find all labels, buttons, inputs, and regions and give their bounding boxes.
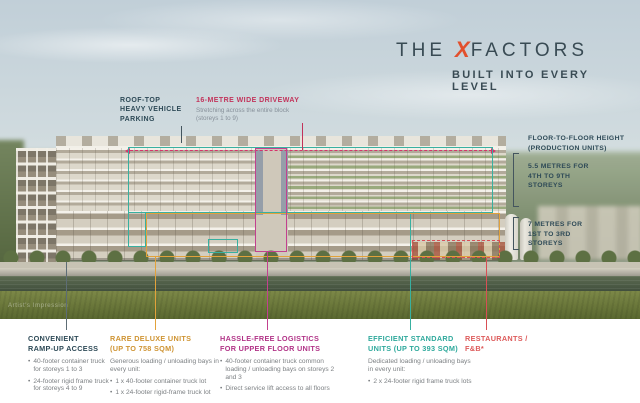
floor-height-lower-label: 7 METRES FOR 1ST TO 3RD STOREYS xyxy=(528,220,582,249)
rooftop-label-line: HEAVY VEHICLE xyxy=(120,105,182,114)
floor-height-line: 5.5 METRES FOR xyxy=(528,162,589,172)
title-factors: FACTORS xyxy=(471,40,588,62)
driveway-label-desc: Stretching across the entire block (stor… xyxy=(196,107,316,122)
floor-height-line: STOREYS xyxy=(528,181,589,191)
driveway-desc-line: Stretching across the entire block xyxy=(196,107,316,115)
legend-header-line: CONVENIENT xyxy=(28,334,114,344)
legend-header-line: (UP TO 758 SQM) xyxy=(110,344,222,354)
legend-ramp-access: CONVENIENT RAMP-UP ACCESS •40-footer con… xyxy=(28,334,114,397)
bullet-item: •40-footer container truck common loadin… xyxy=(220,358,340,381)
floor-height-title-line: FLOOR-TO-FLOOR HEIGHT xyxy=(528,134,632,144)
legend-deluxe-units: RARE DELUXE UNITS (UP TO 758 SQM) Genero… xyxy=(110,334,222,401)
callout-driveway: 16-METRE WIDE DRIVEWAY Stretching across… xyxy=(196,96,316,122)
title-the: THE xyxy=(396,40,446,62)
floor-height-line: 1ST TO 3RD xyxy=(528,230,582,240)
ramp-leader-line xyxy=(66,262,67,330)
driveway-leader-line xyxy=(302,123,303,150)
bullet-text: 40-footer container truck common loading… xyxy=(225,358,340,381)
bullet-text: 1 x 40-footer container truck lot xyxy=(115,378,206,386)
bullet-item: •40-footer container truck for storeys 1… xyxy=(28,358,114,374)
bullet-text: 2 x 24-footer rigid frame truck lots xyxy=(373,378,471,386)
legend-header-line: EFFICIENT STANDARD xyxy=(368,334,472,344)
deluxe-leader-line xyxy=(155,257,156,330)
standard-units-outline-left xyxy=(128,213,146,247)
bullet-dot-icon: • xyxy=(220,358,222,381)
page-subtitle: BUILT INTO EVERY LEVEL xyxy=(452,69,632,93)
lower-storeys-bracket xyxy=(513,217,519,250)
ramp-annex-columns xyxy=(16,148,58,264)
bullet-dot-icon: • xyxy=(368,378,370,386)
logistics-core-outline xyxy=(255,148,287,252)
bullet-item: •2 x 24-footer rigid frame truck lots xyxy=(368,378,472,386)
bullet-dot-icon: • xyxy=(28,378,30,394)
legend-header-line: F&B* xyxy=(465,344,547,354)
title-x-mark: X xyxy=(455,37,470,63)
bullet-dot-icon: • xyxy=(28,358,30,374)
driveway-label-title: 16-METRE WIDE DRIVEWAY xyxy=(196,96,316,105)
floor-height-title-line: (PRODUCTION UNITS) xyxy=(528,144,632,154)
bullet-text: 1 x 24-footer rigid-frame truck lot xyxy=(115,389,210,397)
restaurants-outline xyxy=(412,240,500,258)
grass-bank xyxy=(0,291,640,319)
legend-header-line: HASSLE-FREE LOGISTICS xyxy=(220,334,340,344)
page-title: THE X FACTORS xyxy=(396,36,632,62)
bullet-text: Direct service lift access to all floors xyxy=(225,385,329,393)
floor-height-upper-label: 5.5 METRES FOR 4TH TO 9TH STOREYS xyxy=(528,162,589,191)
legend-bullets: •40-footer container truck for storeys 1… xyxy=(28,358,114,393)
bullet-text: 24-footer rigid frame truck for storeys … xyxy=(33,378,114,394)
floor-height-line: STOREYS xyxy=(528,239,582,249)
legend-header-line: FOR UPPER FLOOR UNITS xyxy=(220,344,340,354)
rooftop-label-line: PARKING xyxy=(120,115,182,124)
legend-intro: Generous loading / unloading bays in eve… xyxy=(110,358,222,374)
canal-water xyxy=(0,276,640,291)
artist-impression-watermark: Artist's Impression xyxy=(8,303,68,309)
legend-header-line: RARE DELUXE UNITS xyxy=(110,334,222,344)
standard-leader-line xyxy=(410,214,411,330)
logistics-leader-line xyxy=(267,252,268,330)
floor-height-line: 7 METRES FOR xyxy=(528,220,582,230)
legend-header-line: RESTAURANTS / xyxy=(465,334,547,344)
legend-bullets: •1 x 40-footer container truck lot•1 x 2… xyxy=(110,378,222,398)
bullet-item: •24-footer rigid frame truck for storeys… xyxy=(28,378,114,394)
legend-logistics: HASSLE-FREE LOGISTICS FOR UPPER FLOOR UN… xyxy=(220,334,340,397)
legend-header-line: UNITS (UP TO 393 SQM) xyxy=(368,344,472,354)
rooftop-leader-line xyxy=(181,126,182,143)
brand-block: THE X FACTORS BUILT INTO EVERY LEVEL xyxy=(396,36,632,93)
legend-restaurants: RESTAURANTS / F&B* xyxy=(465,334,547,354)
standard-units-outline xyxy=(128,147,493,213)
callout-rooftop-parking: ROOF-TOP HEAVY VEHICLE PARKING xyxy=(120,96,182,124)
bullet-item: •Direct service lift access to all floor… xyxy=(220,385,340,393)
legend-intro: Dedicated loading / unloading bays in ev… xyxy=(368,358,472,374)
bullet-item: •1 x 40-footer container truck lot xyxy=(110,378,222,386)
restaurants-leader-line xyxy=(486,258,487,330)
bullet-dot-icon: • xyxy=(110,389,112,397)
rooftop-label-line: ROOF-TOP xyxy=(120,96,182,105)
bullet-dot-icon: • xyxy=(110,378,112,386)
bullet-dot-icon: • xyxy=(220,385,222,393)
callout-floor-height: FLOOR-TO-FLOOR HEIGHT (PRODUCTION UNITS) xyxy=(528,134,632,153)
legend-bullets: •2 x 24-footer rigid frame truck lots xyxy=(368,378,472,386)
legend-standard-units: EFFICIENT STANDARD UNITS (UP TO 393 SQM)… xyxy=(368,334,472,389)
upper-storeys-bracket xyxy=(513,153,519,207)
bullet-text: 40-footer container truck for storeys 1 … xyxy=(33,358,114,374)
bullet-item: •1 x 24-footer rigid-frame truck lot xyxy=(110,389,222,397)
floor-height-line: 4TH TO 9TH xyxy=(528,172,589,182)
legend-bullets: •40-footer container truck common loadin… xyxy=(220,358,340,393)
brochure-page: Artist's Impression THE X FACTORS BUILT … xyxy=(0,0,640,403)
legend-header-line: RAMP-UP ACCESS xyxy=(28,344,114,354)
driveway-desc-line: (storeys 1 to 9) xyxy=(196,115,316,123)
